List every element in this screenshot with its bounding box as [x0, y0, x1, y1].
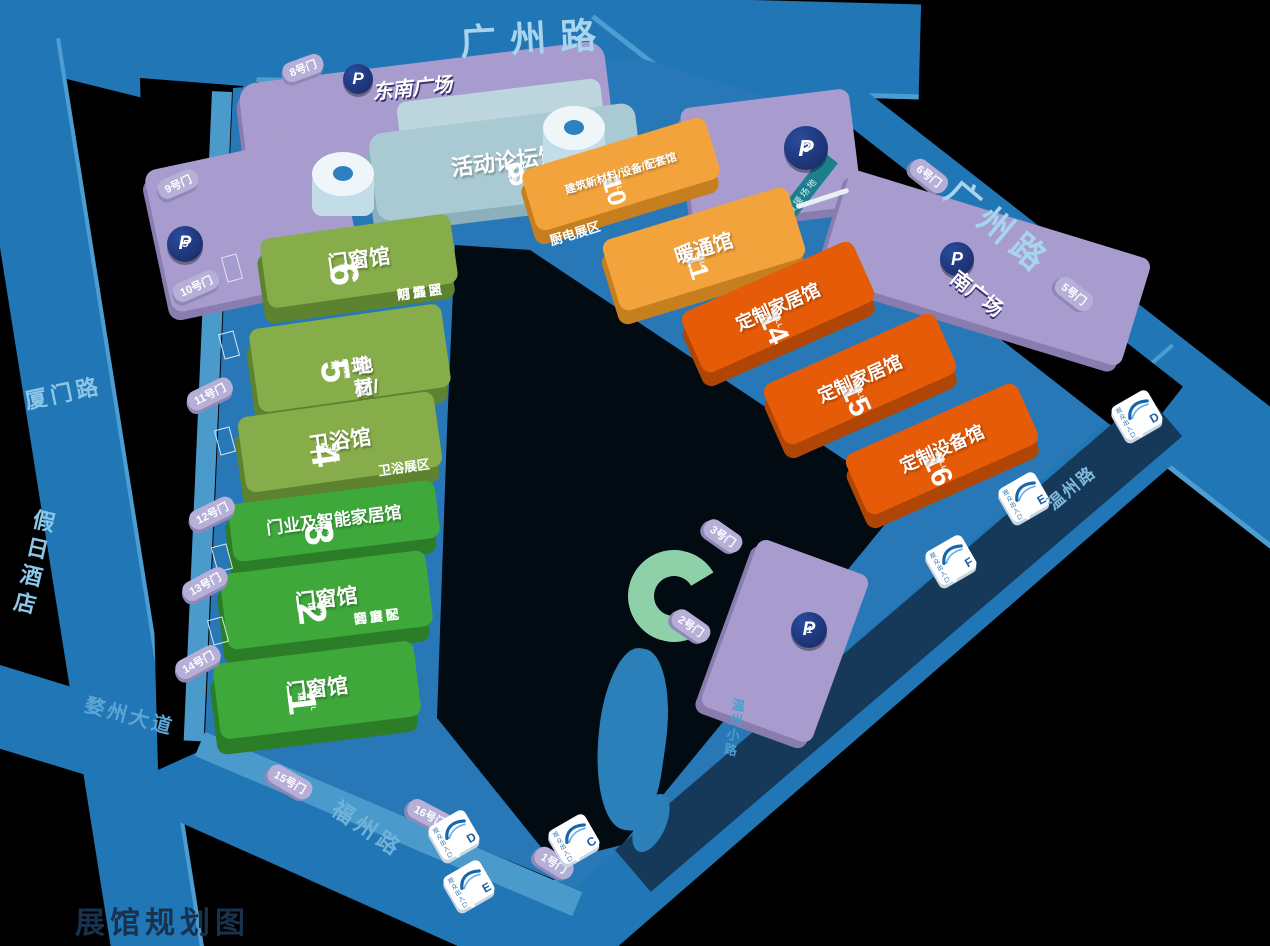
- page-title: 展馆规划图: [75, 898, 250, 942]
- parking-icon-p5: P5: [167, 226, 203, 262]
- storage-tank: [312, 152, 374, 218]
- parking-icon-p1: P1: [791, 612, 827, 648]
- expo-logo-icon: [935, 539, 967, 567]
- parking-icon: P: [343, 64, 373, 94]
- exhibition-map: 消防救援场地 活动论坛馆 9 号馆HALL 门窗馆 号馆HALL 6 墙 面 /…: [0, 0, 1270, 946]
- expo-logo-icon: [453, 864, 485, 892]
- expo-logo-icon: [1008, 476, 1040, 504]
- road-label-guangzhou-north: 广州路: [459, 6, 612, 66]
- parking-icon-p3: P3: [784, 126, 828, 170]
